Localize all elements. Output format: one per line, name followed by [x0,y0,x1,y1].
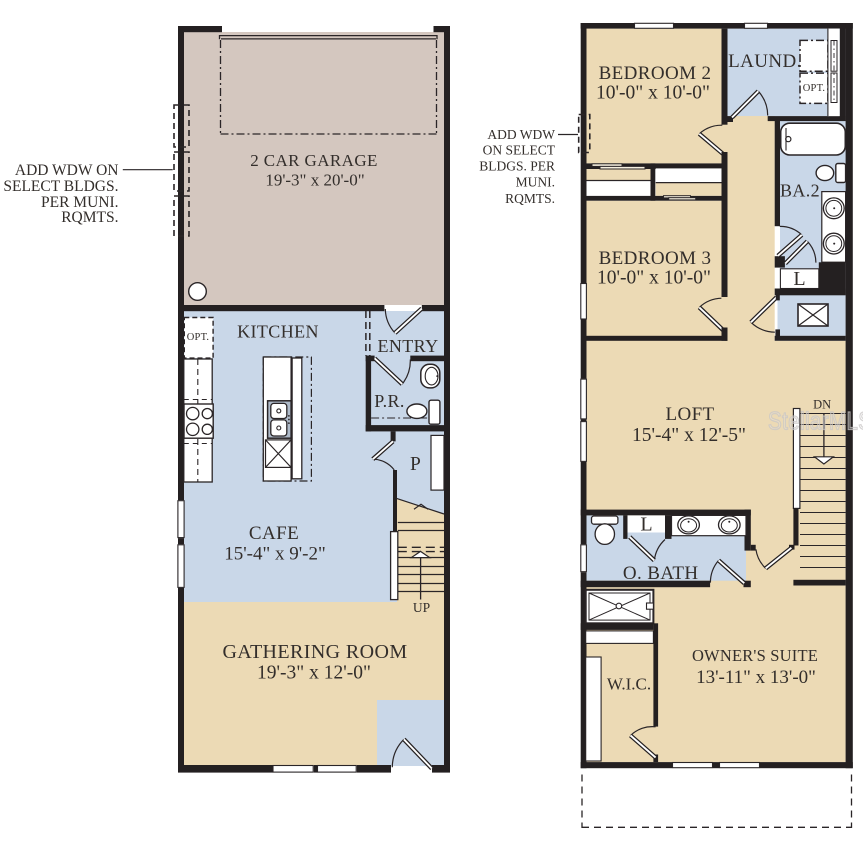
svg-text:BEDROOM 2: BEDROOM 2 [599,63,712,84]
svg-text:SELECT BLDGS.: SELECT BLDGS. [3,178,118,195]
svg-text:W.I.C.: W.I.C. [607,675,651,694]
svg-text:10'-0" x 10'-0": 10'-0" x 10'-0" [597,268,711,289]
svg-text:RQMTS.: RQMTS. [505,191,555,206]
svg-text:LAUND.: LAUND. [728,51,802,72]
svg-text:P: P [410,454,421,475]
svg-text:BEDROOM 3: BEDROOM 3 [599,248,712,269]
svg-text:RQMTS.: RQMTS. [61,209,118,226]
svg-text:15'-4" x 12'-5": 15'-4" x 12'-5" [632,425,746,446]
svg-text:ADD WDW ON: ADD WDW ON [15,162,119,179]
svg-text:ENTRY: ENTRY [377,336,438,356]
svg-text:KITCHEN: KITCHEN [237,322,319,342]
svg-text:L: L [793,268,805,290]
svg-text:CAFE: CAFE [249,523,299,544]
svg-text:P.R.: P.R. [374,391,405,411]
svg-text:13'-11" x 13'-0": 13'-11" x 13'-0" [696,667,816,688]
svg-text:OWNER'S SUITE: OWNER'S SUITE [692,646,818,665]
svg-text:10'-0" x 10'-0": 10'-0" x 10'-0" [596,83,710,104]
svg-text:LOFT: LOFT [665,404,714,425]
svg-text:OPT.: OPT. [803,83,825,94]
svg-text:2 CAR GARAGE: 2 CAR GARAGE [250,151,378,170]
svg-text:ADD WDW: ADD WDW [487,127,555,142]
svg-text:OPT.: OPT. [187,332,209,343]
svg-text:StellarMLS: StellarMLS [768,407,863,435]
svg-text:19'-3" x 12'-0": 19'-3" x 12'-0" [257,663,371,684]
svg-text:19'-3" x 20'-0": 19'-3" x 20'-0" [265,171,364,190]
svg-text:BA.2: BA.2 [780,181,820,201]
svg-text:ON SELECT: ON SELECT [483,143,556,158]
svg-text:BLDGS. PER: BLDGS. PER [479,159,555,174]
svg-text:MUNI.: MUNI. [516,175,555,190]
svg-text:UP: UP [413,600,430,615]
svg-text:L: L [640,514,652,536]
svg-text:15'-4" x 9'-2": 15'-4" x 9'-2" [224,544,326,565]
svg-text:O. BATH: O. BATH [623,563,699,584]
svg-text:GATHERING ROOM: GATHERING ROOM [222,641,407,663]
